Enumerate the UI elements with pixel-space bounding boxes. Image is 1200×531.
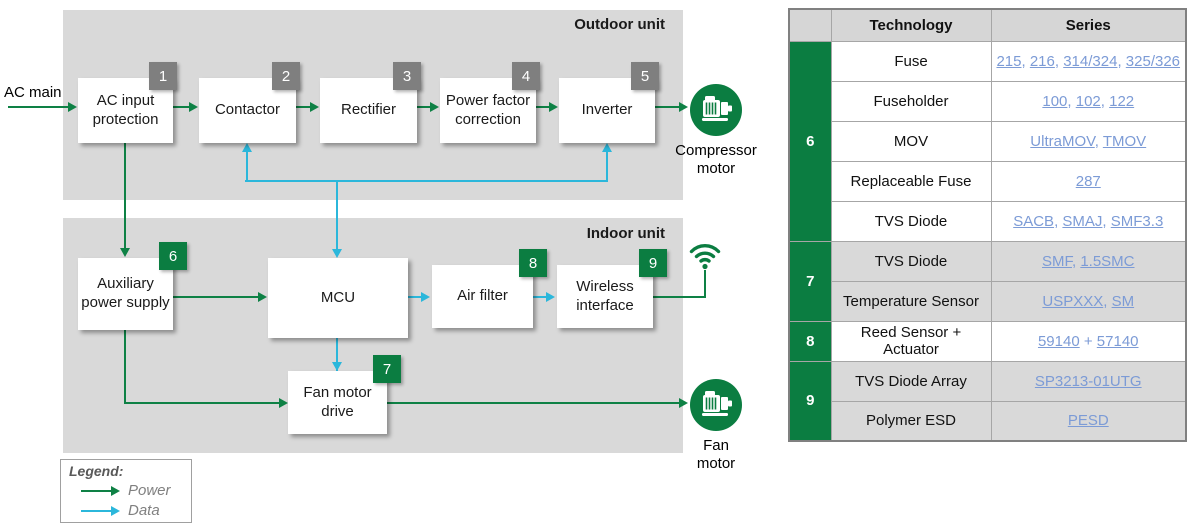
legend-data-row: Data bbox=[81, 502, 183, 519]
tag-9: 9 bbox=[639, 249, 667, 277]
tag-6: 6 bbox=[159, 242, 187, 270]
tech-cell: Replaceable Fuse bbox=[831, 161, 991, 201]
series-link-100[interactable]: 100 bbox=[1042, 93, 1067, 110]
series-cell: SMF, 1.5SMC bbox=[991, 241, 1186, 281]
group-number-6: 6 bbox=[789, 41, 831, 241]
series-link-216[interactable]: 216 bbox=[1030, 53, 1055, 70]
tag-2: 2 bbox=[272, 62, 300, 90]
power-line-fan-drive-fan-motor bbox=[387, 402, 679, 404]
power-arrowhead-rectifier bbox=[310, 102, 319, 112]
indoor-unit-title: Indoor unit bbox=[480, 225, 665, 242]
table-row: 8 Reed Sensor + Actuator 59140 + 57140 bbox=[789, 321, 1186, 361]
power-arrowhead-compressor bbox=[679, 102, 688, 112]
series-link-325-326[interactable]: 325/326 bbox=[1126, 53, 1180, 70]
data-arrowhead-wireless bbox=[546, 292, 555, 302]
series-link-sp3213-01utg[interactable]: SP3213-01UTG bbox=[1035, 373, 1142, 390]
data-line-mcu-air-filter bbox=[408, 296, 421, 298]
power-arrowhead-aux bbox=[120, 248, 130, 257]
data-arrowhead-inverter bbox=[602, 143, 612, 152]
data-line-to-inverter bbox=[606, 152, 608, 182]
power-line-pfc-inverter bbox=[536, 106, 549, 108]
compressor-motor-icon bbox=[690, 84, 742, 141]
power-line-inverter-compressor bbox=[655, 106, 679, 108]
series-cell: 100, 102, 122 bbox=[991, 81, 1186, 121]
power-line-rectifier-pfc bbox=[417, 106, 430, 108]
fan-motor-label: Fan motor bbox=[686, 437, 746, 473]
table-row: Temperature Sensor USPXXX, SM bbox=[789, 281, 1186, 321]
block-fan-motor-drive-label: Fan motor drive bbox=[290, 384, 385, 422]
power-line-contactor-rectifier bbox=[296, 106, 310, 108]
legend-title: Legend: bbox=[69, 463, 183, 479]
series-link-59140[interactable]: 59140 bbox=[1038, 333, 1080, 350]
series-separator: + bbox=[1080, 333, 1097, 350]
series-cell: PESD bbox=[991, 401, 1186, 441]
series-cell: 287 bbox=[991, 161, 1186, 201]
technology-series-table: Technology Series 6 Fuse 215, 216, 314/3… bbox=[788, 8, 1187, 442]
series-link-smf3-3[interactable]: SMF3.3 bbox=[1111, 213, 1164, 230]
series-cell: 59140 + 57140 bbox=[991, 321, 1186, 361]
legend: Legend: Power Data bbox=[60, 459, 192, 523]
power-arrowhead-contactor bbox=[189, 102, 198, 112]
series-separator: , bbox=[1103, 293, 1111, 310]
power-arrow-sample bbox=[81, 490, 111, 492]
power-line-aux-down bbox=[124, 330, 126, 404]
power-arrowhead-fan-motor bbox=[679, 398, 688, 408]
data-line-to-contactor bbox=[246, 152, 248, 182]
fan-motor-icon bbox=[690, 379, 742, 436]
tech-cell: Polymer ESD bbox=[831, 401, 991, 441]
power-line-to-fan-drive bbox=[124, 402, 279, 404]
wifi-icon bbox=[687, 238, 723, 275]
block-air-filter: Air filter bbox=[432, 265, 533, 328]
power-arrowhead-fan-drive bbox=[279, 398, 288, 408]
tech-cell: Fuseholder bbox=[831, 81, 991, 121]
series-link-287[interactable]: 287 bbox=[1076, 173, 1101, 190]
compressor-motor-label: Compressor motor bbox=[666, 142, 766, 178]
table-row: Fuseholder 100, 102, 122 bbox=[789, 81, 1186, 121]
data-line-bus bbox=[245, 180, 607, 182]
table-row: Replaceable Fuse 287 bbox=[789, 161, 1186, 201]
block-mcu-label: MCU bbox=[321, 289, 355, 308]
power-arrowhead-ac-main bbox=[68, 102, 77, 112]
series-link-122[interactable]: 122 bbox=[1109, 93, 1134, 110]
series-separator: , bbox=[1117, 53, 1125, 70]
block-wireless-interface-label: Wireless interface bbox=[559, 278, 651, 316]
legend-data-label: Data bbox=[128, 502, 160, 519]
series-link-ultramov[interactable]: UltraMOV bbox=[1030, 133, 1094, 150]
series-link-1-5smc[interactable]: 1.5SMC bbox=[1080, 253, 1134, 270]
series-link-215[interactable]: 215 bbox=[996, 53, 1021, 70]
series-link-smf[interactable]: SMF bbox=[1042, 253, 1072, 270]
table-header-series: Series bbox=[991, 9, 1186, 41]
data-arrowhead-air-filter bbox=[421, 292, 430, 302]
outdoor-unit-title: Outdoor unit bbox=[480, 16, 665, 33]
block-auxiliary-power-supply-label: Auxiliary power supply bbox=[80, 275, 171, 313]
data-line-air-filter-wireless bbox=[533, 296, 546, 298]
tag-5: 5 bbox=[631, 62, 659, 90]
wifi-line-horizontal bbox=[653, 296, 706, 298]
series-cell: UltraMOV, TMOV bbox=[991, 121, 1186, 161]
tag-3: 3 bbox=[393, 62, 421, 90]
legend-power-label: Power bbox=[128, 482, 171, 499]
data-arrowhead-contactor bbox=[242, 143, 252, 152]
series-link-314-324[interactable]: 314/324 bbox=[1063, 53, 1117, 70]
tech-cell: TVS Diode Array bbox=[831, 361, 991, 401]
table-row: 6 Fuse 215, 216, 314/324, 325/326 bbox=[789, 41, 1186, 81]
tag-7: 7 bbox=[373, 355, 401, 383]
series-cell: USPXXX, SM bbox=[991, 281, 1186, 321]
table-row: 7 TVS Diode SMF, 1.5SMC bbox=[789, 241, 1186, 281]
power-line-acin-aux bbox=[124, 143, 126, 248]
tech-cell: Reed Sensor + Actuator bbox=[831, 321, 991, 361]
tag-1: 1 bbox=[149, 62, 177, 90]
power-line-acin-contactor bbox=[173, 106, 189, 108]
data-arrowhead-sample bbox=[111, 506, 120, 516]
group-number-7: 7 bbox=[789, 241, 831, 321]
power-line-aux-mcu bbox=[173, 296, 258, 298]
series-link-102[interactable]: 102 bbox=[1076, 93, 1101, 110]
table-row: Polymer ESD PESD bbox=[789, 401, 1186, 441]
ac-main-label: AC main bbox=[4, 84, 62, 101]
application-diagram-page: Outdoor unit Indoor unit AC main AC inpu… bbox=[0, 0, 1200, 531]
group-number-8: 8 bbox=[789, 321, 831, 361]
series-separator: , bbox=[1095, 133, 1103, 150]
legend-power-row: Power bbox=[81, 482, 183, 499]
table-row: TVS Diode SACB, SMAJ, SMF3.3 bbox=[789, 201, 1186, 241]
series-link-tmov[interactable]: TMOV bbox=[1103, 133, 1146, 150]
data-arrowhead-mcu bbox=[332, 249, 342, 258]
table-header-corner bbox=[789, 9, 831, 41]
block-power-factor-correction-label: Power factor correction bbox=[442, 92, 534, 130]
table-row: MOV UltraMOV, TMOV bbox=[789, 121, 1186, 161]
table-header-technology: Technology bbox=[831, 9, 991, 41]
power-line-ac-main bbox=[8, 106, 68, 108]
tag-4: 4 bbox=[512, 62, 540, 90]
block-air-filter-label: Air filter bbox=[457, 287, 508, 306]
block-rectifier-label: Rectifier bbox=[341, 101, 396, 120]
table-row: 9 TVS Diode Array SP3213-01UTG bbox=[789, 361, 1186, 401]
power-arrowhead-pfc bbox=[430, 102, 439, 112]
series-cell: 215, 216, 314/324, 325/326 bbox=[991, 41, 1186, 81]
data-line-to-mcu bbox=[336, 180, 338, 249]
power-arrowhead-sample bbox=[111, 486, 120, 496]
block-contactor-label: Contactor bbox=[215, 101, 280, 120]
series-separator: , bbox=[1022, 53, 1030, 70]
tag-8: 8 bbox=[519, 249, 547, 277]
series-separator: , bbox=[1101, 93, 1109, 110]
data-arrowhead-fan-drive bbox=[332, 362, 342, 371]
series-separator: , bbox=[1102, 213, 1110, 230]
tech-cell: MOV bbox=[831, 121, 991, 161]
table-header-row: Technology Series bbox=[789, 9, 1186, 41]
block-ac-input-protection-label: AC input protection bbox=[80, 92, 171, 130]
series-link-smaj[interactable]: SMAJ bbox=[1062, 213, 1102, 230]
series-link-pesd[interactable]: PESD bbox=[1068, 412, 1109, 429]
block-inverter-label: Inverter bbox=[582, 101, 633, 120]
block-mcu: MCU bbox=[268, 258, 408, 338]
series-cell: SACB, SMAJ, SMF3.3 bbox=[991, 201, 1186, 241]
series-link-sm[interactable]: SM bbox=[1112, 293, 1135, 310]
tech-cell: TVS Diode bbox=[831, 201, 991, 241]
series-separator: , bbox=[1055, 53, 1063, 70]
power-arrowhead-inverter bbox=[549, 102, 558, 112]
series-link-sacb[interactable]: SACB bbox=[1013, 213, 1054, 230]
series-separator: , bbox=[1067, 93, 1075, 110]
series-link-57140[interactable]: 57140 bbox=[1097, 333, 1139, 350]
tech-cell: Fuse bbox=[831, 41, 991, 81]
data-arrow-sample bbox=[81, 510, 111, 512]
tech-cell: TVS Diode bbox=[831, 241, 991, 281]
group-number-9: 9 bbox=[789, 361, 831, 441]
series-link-uspxxx[interactable]: USPXXX bbox=[1042, 293, 1103, 310]
series-cell: SP3213-01UTG bbox=[991, 361, 1186, 401]
tech-cell: Temperature Sensor bbox=[831, 281, 991, 321]
power-arrowhead-mcu bbox=[258, 292, 267, 302]
